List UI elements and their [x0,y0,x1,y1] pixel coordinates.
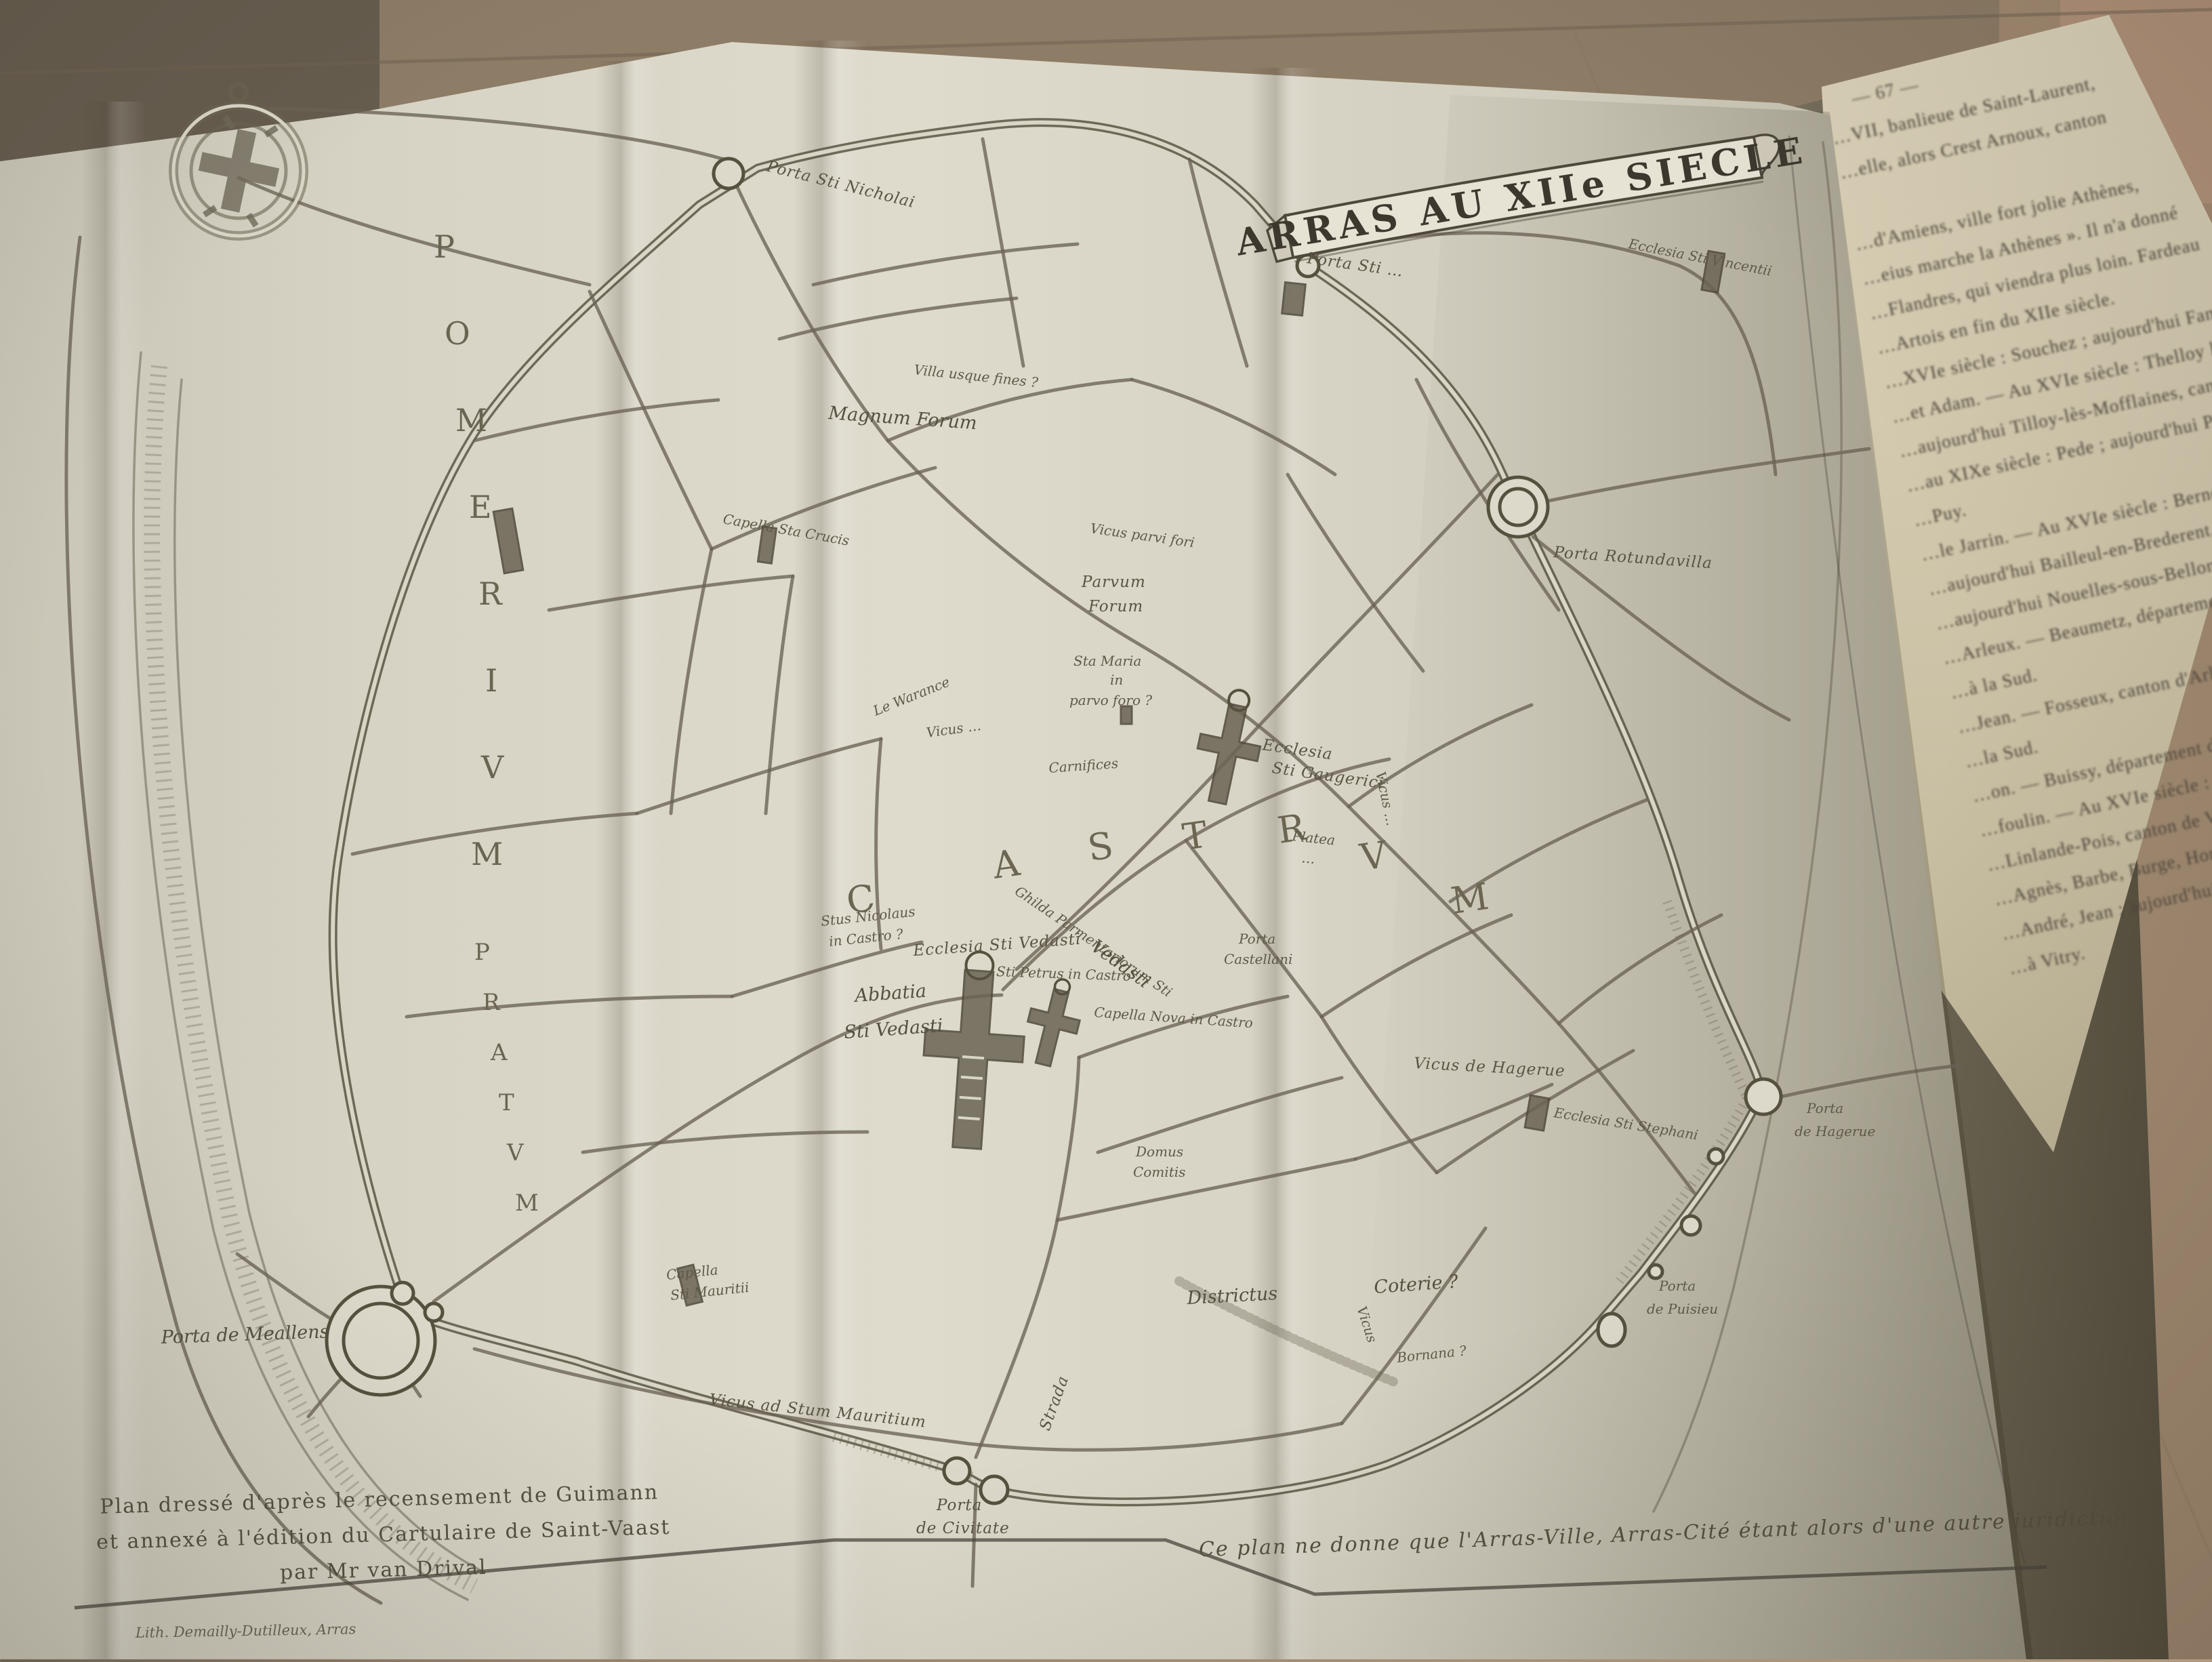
gate-rotundavilla-inner [1500,489,1536,525]
region-letter: P [474,939,490,966]
label-porta-civitate-1: Porta [936,1497,982,1514]
label-domus-comitis-1: Domus [1135,1143,1183,1160]
label-domus-comitis-2: Comitis [1133,1164,1185,1180]
label-sta-maria-3: parvo foro ? [1069,692,1152,708]
region-letter: T [499,1089,514,1116]
chapel-ste-marie-parvo-foro [1121,706,1132,724]
gate-hagerue [1746,1079,1781,1114]
label-porta-hagerue-2: de Hagerue [1795,1123,1875,1139]
wall-tower [1681,1216,1700,1235]
region-letter: R [478,575,504,612]
bastion-turret [392,1282,413,1304]
label-parvum-forum-1: Parvum [1081,573,1146,591]
church-near-north-gate [1282,283,1306,316]
wall-tower [1708,1149,1723,1164]
fold-crease [596,61,661,1659]
label-porta-castellani-2: Castellani [1224,951,1292,967]
region-letter: R [483,989,501,1016]
meallens-bastion-inner [344,1303,418,1378]
region-letter: V [506,1139,525,1167]
region-letter: O [445,315,472,352]
region-letter: M [515,1190,539,1217]
region-letter: A [490,1039,508,1066]
label-sta-maria-1: Sta Maria [1073,653,1141,669]
label-sta-maria-2: in [1110,672,1123,688]
wall-tower [1598,1314,1625,1346]
photo-of-foldout-map: ARRAS AU XIIe SIECLE P O M E R I V M P R… [0,0,2212,1659]
region-letter: I [485,662,499,699]
gate-civitate-tower [981,1476,1008,1503]
gate-civitate-tower [944,1458,970,1484]
label-porta-castellani-1: Porta [1238,931,1275,947]
region-letter: P [434,228,456,265]
region-letter: M [1448,875,1492,923]
bastion-turret [425,1303,443,1321]
label-porta-civitate-2: de Civitate [916,1520,1010,1537]
wall-tower [1649,1265,1662,1278]
gate-st-nicholas [714,159,743,188]
region-letter: M [455,402,489,439]
label-parvum-forum-2: Forum [1088,598,1143,615]
region-letter: M [471,836,504,872]
label-porta-hagerue-1: Porta [1806,1100,1843,1116]
region-letter: E [469,489,493,525]
label-porta-puisieu-2: de Puisieu [1647,1301,1718,1317]
label-porta-puisieu-1: Porta [1658,1278,1696,1294]
label-platea-2: … [1300,849,1315,867]
region-letter: V [480,749,505,786]
